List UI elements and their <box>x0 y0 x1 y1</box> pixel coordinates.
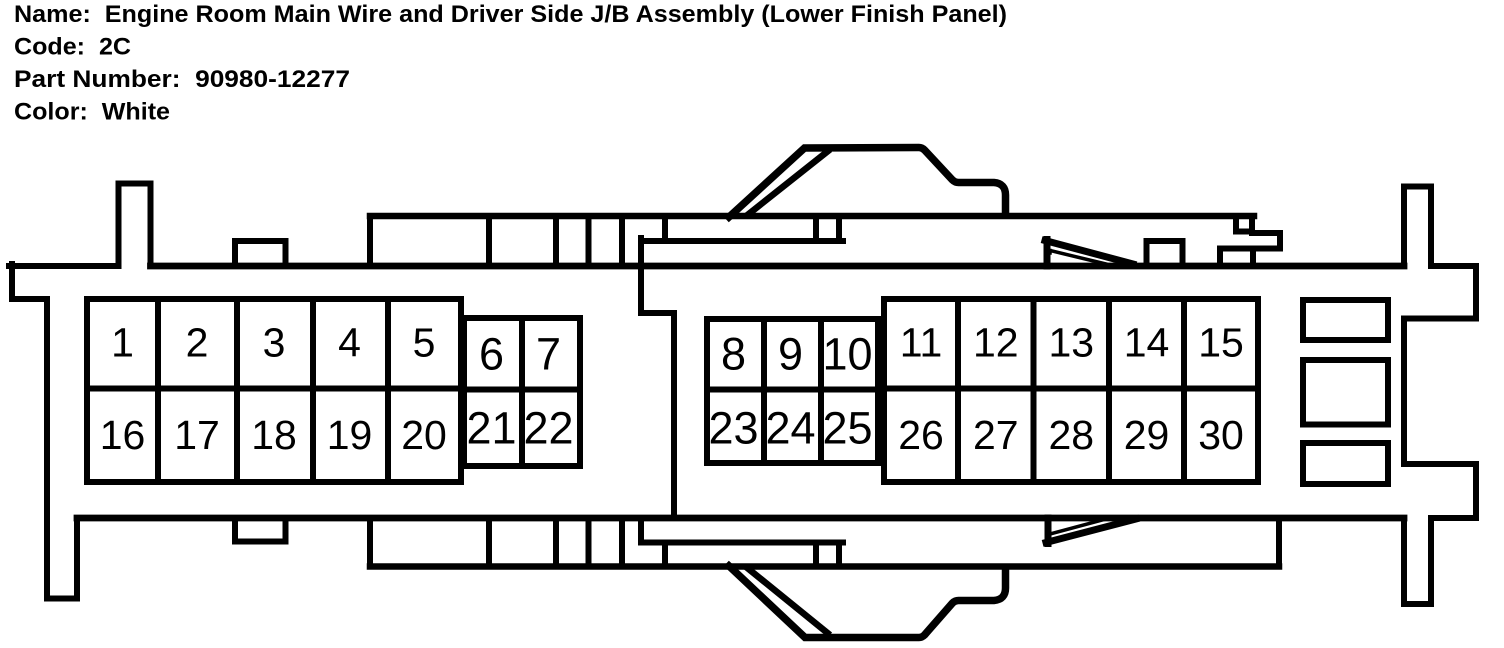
svg-text:29: 29 <box>1124 412 1170 458</box>
svg-text:23: 23 <box>708 403 758 454</box>
svg-text:Code: 2C: Code: 2C <box>14 34 131 61</box>
svg-text:14: 14 <box>1124 320 1170 366</box>
svg-text:4: 4 <box>338 320 361 366</box>
svg-text:16: 16 <box>100 412 146 458</box>
svg-text:8: 8 <box>721 329 746 380</box>
svg-text:18: 18 <box>251 412 297 458</box>
svg-text:1: 1 <box>111 320 134 366</box>
svg-text:2: 2 <box>186 320 209 366</box>
svg-text:7: 7 <box>536 329 561 380</box>
svg-text:21: 21 <box>466 403 516 454</box>
svg-text:3: 3 <box>263 320 286 366</box>
svg-text:Color: White: Color: White <box>14 99 170 126</box>
svg-text:30: 30 <box>1198 412 1244 458</box>
svg-text:20: 20 <box>401 412 447 458</box>
svg-text:13: 13 <box>1048 320 1094 366</box>
svg-text:26: 26 <box>898 412 944 458</box>
svg-text:Name: Engine Room Main Wire a: Name: Engine Room Main Wire and Driver S… <box>14 1 1007 28</box>
svg-text:25: 25 <box>822 403 872 454</box>
svg-text:Part Number: 90980-12277: Part Number: 90980-12277 <box>14 66 350 93</box>
svg-text:27: 27 <box>973 412 1019 458</box>
svg-text:15: 15 <box>1198 320 1244 366</box>
svg-text:24: 24 <box>765 403 815 454</box>
svg-text:6: 6 <box>479 329 504 380</box>
svg-text:28: 28 <box>1048 412 1094 458</box>
svg-text:22: 22 <box>523 403 573 454</box>
svg-text:10: 10 <box>822 329 872 380</box>
svg-text:17: 17 <box>174 412 220 458</box>
svg-text:9: 9 <box>778 329 803 380</box>
svg-text:5: 5 <box>413 320 436 366</box>
svg-text:19: 19 <box>327 412 373 458</box>
svg-text:12: 12 <box>973 320 1019 366</box>
svg-text:11: 11 <box>900 320 943 366</box>
